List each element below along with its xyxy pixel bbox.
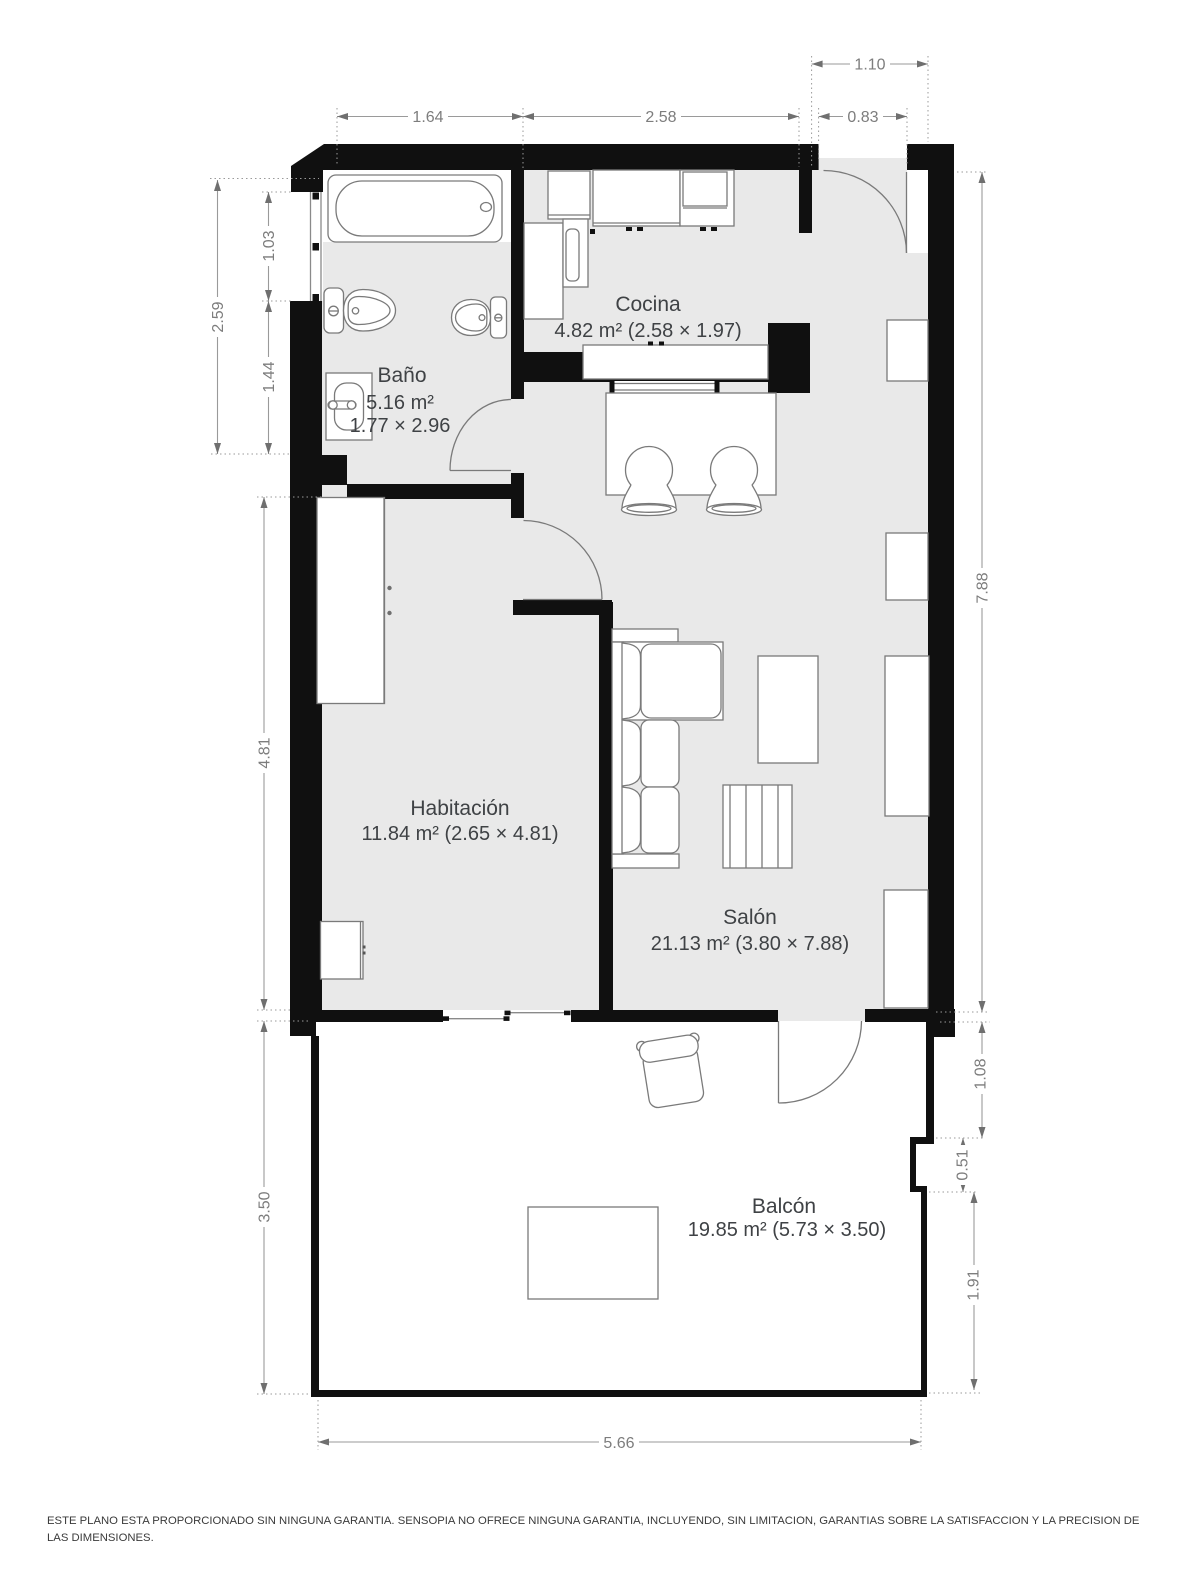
svg-text:2.59: 2.59 bbox=[210, 301, 227, 332]
svg-text:7.88: 7.88 bbox=[975, 572, 992, 603]
svg-text:0.51: 0.51 bbox=[955, 1149, 972, 1180]
svg-text:Baño: Baño bbox=[377, 364, 426, 387]
svg-text:19.85 m² (5.73 × 3.50): 19.85 m² (5.73 × 3.50) bbox=[688, 1219, 886, 1241]
svg-text:Cocina: Cocina bbox=[615, 293, 681, 316]
svg-text:21.13 m² (3.80 × 7.88): 21.13 m² (3.80 × 7.88) bbox=[651, 933, 849, 955]
svg-text:1.03: 1.03 bbox=[261, 230, 278, 261]
svg-text:Habitación: Habitación bbox=[410, 797, 509, 820]
svg-text:5.66: 5.66 bbox=[603, 1435, 634, 1452]
svg-text:1.08: 1.08 bbox=[973, 1058, 990, 1089]
svg-text:11.84 m² (2.65 × 4.81): 11.84 m² (2.65 × 4.81) bbox=[362, 823, 559, 845]
svg-text:1.77 × 2.96: 1.77 × 2.96 bbox=[350, 415, 451, 437]
svg-text:4.82 m² (2.58 × 1.97): 4.82 m² (2.58 × 1.97) bbox=[554, 320, 741, 342]
svg-text:Salón: Salón bbox=[723, 906, 777, 929]
svg-text:4.81: 4.81 bbox=[257, 737, 274, 768]
svg-text:LAS DIMENSIONES.: LAS DIMENSIONES. bbox=[47, 1532, 154, 1544]
svg-text:5.16 m²: 5.16 m² bbox=[366, 392, 434, 414]
svg-text:1.10: 1.10 bbox=[854, 57, 885, 74]
svg-text:0.83: 0.83 bbox=[847, 109, 878, 126]
svg-text:1.64: 1.64 bbox=[412, 109, 443, 126]
svg-text:3.50: 3.50 bbox=[257, 1191, 274, 1222]
svg-text:2.58: 2.58 bbox=[645, 109, 676, 126]
svg-text:ESTE PLANO ESTA PROPORCIONADO: ESTE PLANO ESTA PROPORCIONADO SIN NINGUN… bbox=[47, 1515, 1140, 1527]
svg-text:Balcón: Balcón bbox=[752, 1195, 816, 1218]
svg-text:1.44: 1.44 bbox=[261, 361, 278, 392]
svg-text:1.91: 1.91 bbox=[966, 1269, 983, 1300]
